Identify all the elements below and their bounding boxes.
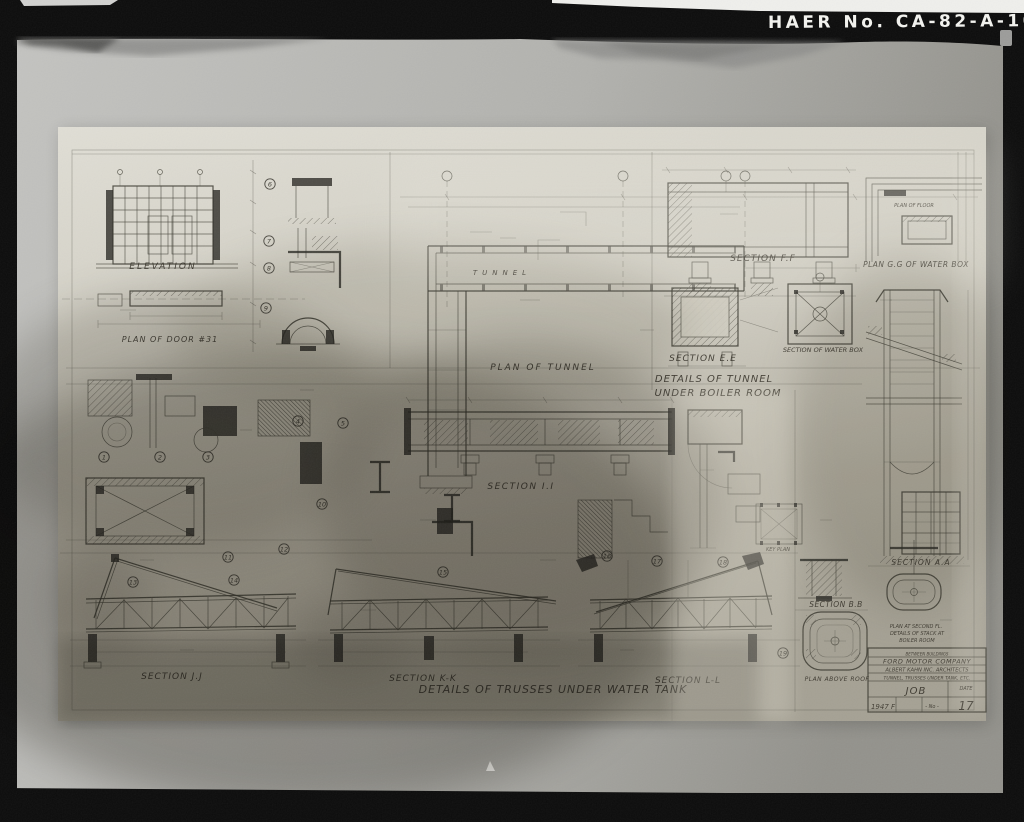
archival-photo: ELEVATIONPLAN OF DOOR #31TUNNELPLAN OF T…: [0, 0, 1024, 822]
photo-canvas: ELEVATIONPLAN OF DOOR #31TUNNELPLAN OF T…: [0, 0, 1024, 822]
film-grain: [0, 0, 1024, 822]
archive-label: HAER No. CA-82-A-108: [768, 11, 1024, 33]
